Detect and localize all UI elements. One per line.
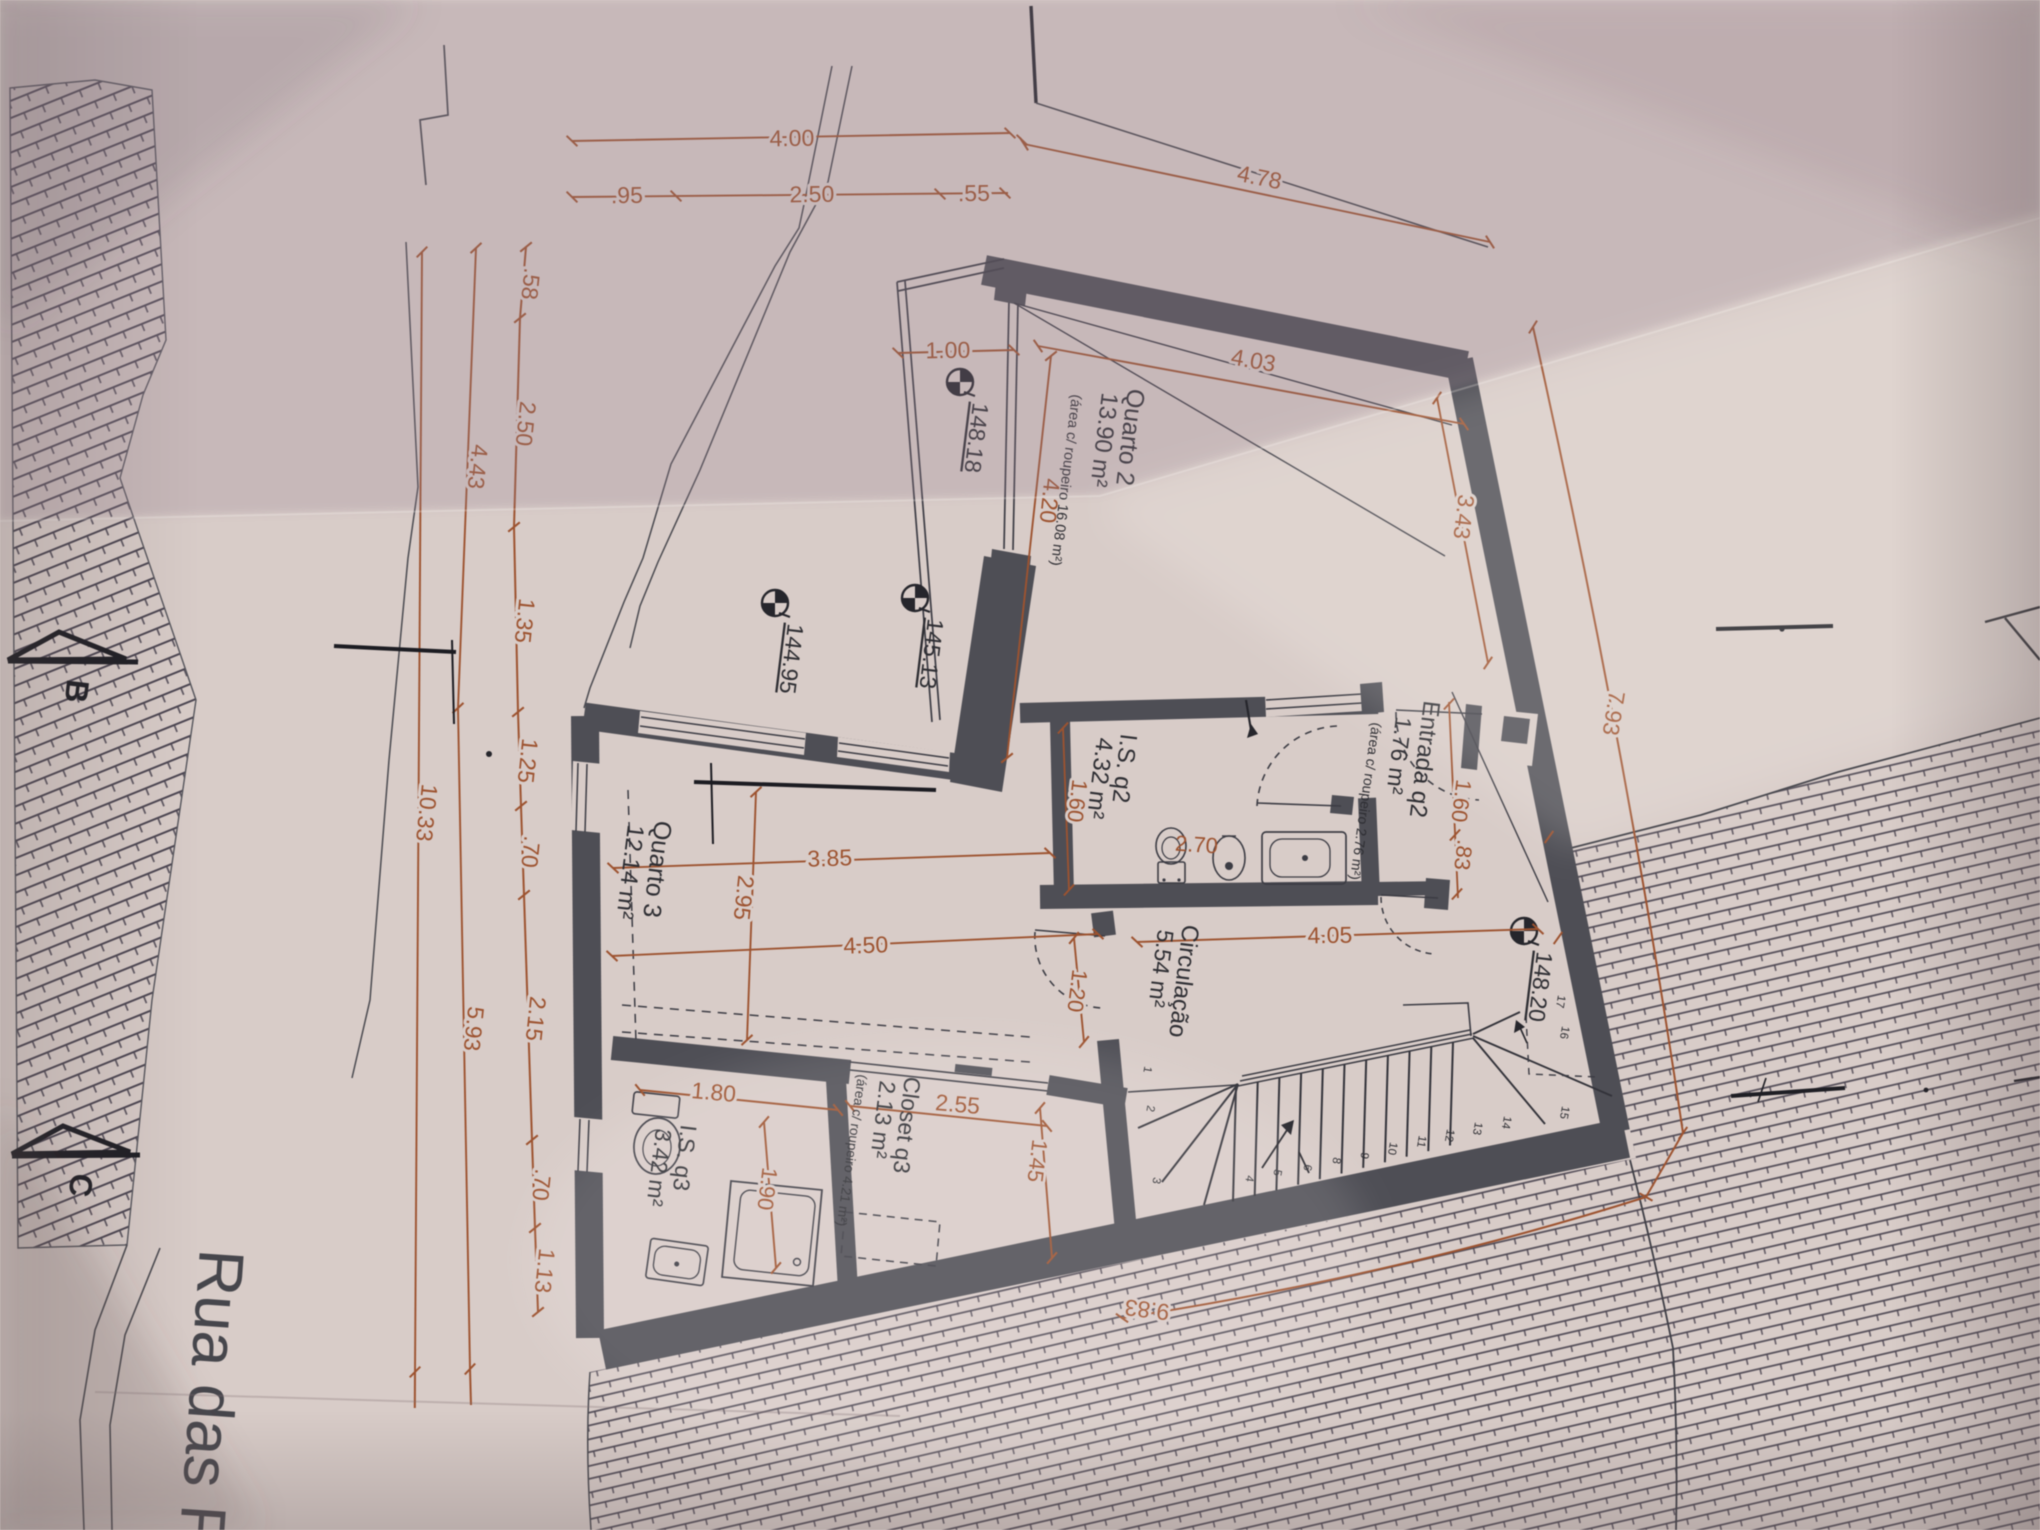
svg-text:4.50: 4.50: [843, 931, 889, 959]
svg-text:2.70: 2.70: [1174, 831, 1218, 859]
svg-text:1.20: 1.20: [1062, 968, 1092, 1014]
svg-text:.70: .70: [516, 835, 545, 870]
svg-text:2.95: 2.95: [729, 874, 760, 921]
svg-text:1.25: 1.25: [513, 737, 544, 784]
svg-text:1.35: 1.35: [510, 597, 541, 644]
svg-text:17: 17: [1553, 994, 1567, 1009]
svg-text:3.85: 3.85: [807, 844, 853, 872]
svg-text:1.60: 1.60: [1446, 778, 1476, 824]
svg-text:12: 12: [1442, 1128, 1456, 1143]
svg-text:4.05: 4.05: [1307, 922, 1352, 949]
svg-text:.83: .83: [1449, 838, 1478, 871]
svg-text:15: 15: [1557, 1105, 1571, 1120]
svg-text:2.15: 2.15: [521, 995, 552, 1042]
svg-text:5.93: 5.93: [459, 1005, 490, 1052]
svg-text:11: 11: [1414, 1135, 1428, 1149]
svg-text:10: 10: [1385, 1141, 1399, 1156]
svg-text:13: 13: [1470, 1121, 1484, 1136]
svg-text:16: 16: [1557, 1025, 1571, 1040]
